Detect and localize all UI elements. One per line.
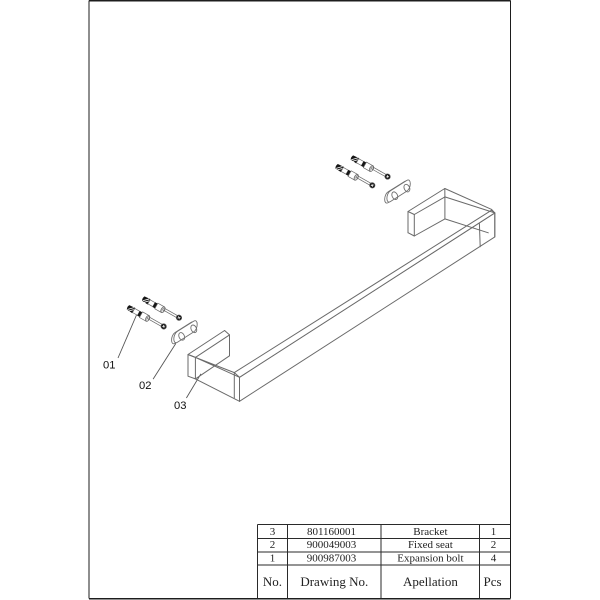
svg-text:3: 3 [270,526,276,538]
svg-text:801160001: 801160001 [307,526,356,538]
svg-text:1: 1 [491,526,497,538]
svg-text:1: 1 [270,553,276,565]
svg-text:Expansion bolt: Expansion bolt [397,553,463,565]
svg-text:2: 2 [270,539,276,551]
svg-text:4: 4 [491,553,497,565]
svg-text:03: 03 [174,400,186,412]
svg-text:Apellation: Apellation [403,574,458,589]
svg-text:Pcs: Pcs [483,574,501,589]
svg-text:01: 01 [103,360,115,372]
svg-text:Fixed seat: Fixed seat [408,539,453,551]
svg-text:Bracket: Bracket [413,526,447,538]
svg-text:2: 2 [491,539,497,551]
svg-text:02: 02 [139,380,151,392]
svg-text:900049003: 900049003 [307,539,357,551]
svg-text:900987003: 900987003 [307,553,357,565]
svg-text:Drawing No.: Drawing No. [300,574,368,589]
svg-text:No.: No. [263,574,282,589]
